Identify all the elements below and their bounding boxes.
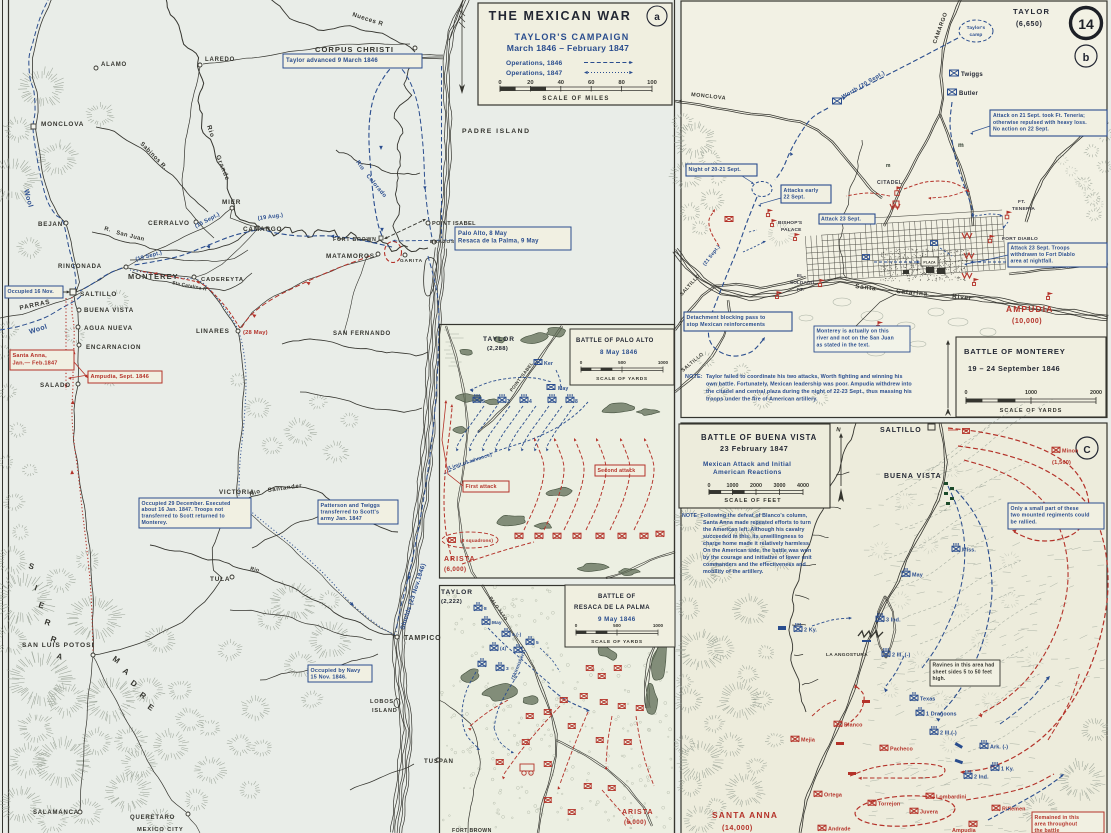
svg-text:AMPUDIA: AMPUDIA xyxy=(1006,304,1053,314)
svg-text:22 Sept.: 22 Sept. xyxy=(784,194,806,200)
svg-text:Santa Anna,: Santa Anna, xyxy=(13,353,48,359)
svg-text:Occupied 16 Nov.: Occupied 16 Nov. xyxy=(8,289,55,295)
svg-text:FT.: FT. xyxy=(1018,199,1026,205)
svg-text:Operations, 1846: Operations, 1846 xyxy=(506,60,562,67)
svg-text:(6,000): (6,000) xyxy=(624,819,646,826)
svg-text:otherwise repulsed with heavy: otherwise repulsed with heavy loss. xyxy=(993,120,1087,126)
svg-text:SALTILLO: SALTILLO xyxy=(80,291,117,298)
svg-text:PLAZA: PLAZA xyxy=(923,261,936,265)
svg-text:EL: EL xyxy=(797,273,803,278)
svg-text:m: m xyxy=(958,142,964,149)
svg-text:FORT BROWN: FORT BROWN xyxy=(452,828,492,833)
svg-text:POINT ISABEL: POINT ISABEL xyxy=(432,221,476,227)
svg-text:withdrawn to Fort Diablo: withdrawn to Fort Diablo xyxy=(1010,252,1076,258)
svg-text:BATTLE OF PALO ALTO: BATTLE OF PALO ALTO xyxy=(576,338,654,344)
svg-text:Monterey is actually on this: Monterey is actually on this xyxy=(817,329,889,335)
svg-text:80: 80 xyxy=(618,80,624,86)
svg-text:LOBOS: LOBOS xyxy=(370,699,394,705)
svg-text:5: 5 xyxy=(536,640,539,646)
svg-text:(4): (4) xyxy=(500,646,506,652)
svg-text:(1,500): (1,500) xyxy=(1052,460,1071,466)
svg-text:0: 0 xyxy=(965,390,968,396)
svg-text:500: 500 xyxy=(613,623,621,628)
svg-text:high.: high. xyxy=(933,676,946,682)
svg-text:by the courage and initiative: by the courage and initiative of lower u… xyxy=(703,555,812,561)
svg-text:SCALE OF YARDS: SCALE OF YARDS xyxy=(1000,408,1063,414)
svg-text:20: 20 xyxy=(527,80,533,86)
svg-text:BATTLE OF BUENA VISTA: BATTLE OF BUENA VISTA xyxy=(701,433,817,442)
svg-text:0: 0 xyxy=(708,483,711,489)
svg-text:4000: 4000 xyxy=(797,483,809,489)
svg-text:1000: 1000 xyxy=(727,483,739,489)
svg-text:MONTEREY: MONTEREY xyxy=(128,272,179,281)
svg-text:NOTE:: NOTE: xyxy=(685,374,703,380)
svg-text:First attack: First attack xyxy=(466,484,497,490)
svg-text:MATAMOROS: MATAMOROS xyxy=(326,253,375,260)
svg-text:FORT DIABLO: FORT DIABLO xyxy=(1002,236,1038,242)
svg-text:camp: camp xyxy=(970,33,983,38)
svg-text:Ampudia: Ampudia xyxy=(952,828,977,833)
svg-text:Butler: Butler xyxy=(959,91,978,97)
svg-text:the citadel and central plaza: the citadel and central plaza during the… xyxy=(706,389,912,395)
svg-text:ARISTA: ARISTA xyxy=(444,556,476,563)
svg-text:2 Ky.: 2 Ky. xyxy=(804,628,817,634)
svg-text:troops under the fire of Ameri: troops under the fire of American artill… xyxy=(706,397,818,403)
svg-text:CORPUS CHRISTI: CORPUS CHRISTI xyxy=(315,45,394,54)
svg-text:SCALE OF MILES: SCALE OF MILES xyxy=(542,96,609,102)
svg-text:CERRALVO: CERRALVO xyxy=(148,220,190,227)
svg-text:On the American side, the batt: On the American side, the battle was won xyxy=(703,548,811,554)
svg-text:RINCONADA: RINCONADA xyxy=(58,264,102,270)
svg-text:Only a small part of these: Only a small part of these xyxy=(1011,506,1079,512)
svg-text:60: 60 xyxy=(588,80,594,86)
svg-text:Palo Alto, 8 May: Palo Alto, 8 May xyxy=(458,231,507,237)
svg-text:Remained in this: Remained in this xyxy=(1035,815,1080,821)
svg-text:4: 4 xyxy=(529,399,532,405)
svg-text:transferred to Scott returned: transferred to Scott returned to xyxy=(142,514,225,520)
svg-text:500: 500 xyxy=(618,360,626,365)
svg-text:own battle. Fortunately, Mexic: own battle. Fortunately, Mexican leaders… xyxy=(706,382,912,388)
svg-text:(6,000): (6,000) xyxy=(444,566,466,573)
svg-text:BATTLE OF MONTEREY: BATTLE OF MONTEREY xyxy=(964,347,1066,356)
svg-text:2000: 2000 xyxy=(750,483,762,489)
svg-text:TULA: TULA xyxy=(210,576,230,583)
svg-text:the battle: the battle xyxy=(1035,828,1060,833)
svg-text:ENCARNACION: ENCARNACION xyxy=(86,344,141,351)
svg-text:SOLDADO: SOLDADO xyxy=(790,280,815,285)
svg-text:TAYLOR: TAYLOR xyxy=(441,589,473,596)
svg-text:mobility of the artillery.: mobility of the artillery. xyxy=(703,569,764,575)
svg-text:SCALE OF YARDS: SCALE OF YARDS xyxy=(591,639,643,645)
svg-text:(28 May): (28 May) xyxy=(243,330,268,336)
svg-text:4 (-): 4 (-) xyxy=(512,632,522,638)
svg-text:RESACA DE LA PALMA: RESACA DE LA PALMA xyxy=(574,605,650,611)
svg-text:8 May 1846: 8 May 1846 xyxy=(600,349,638,356)
svg-text:Ker: Ker xyxy=(544,361,553,367)
svg-text:Occupied by Navy: Occupied by Navy xyxy=(311,668,361,674)
svg-text:as stated in the text.: as stated in the text. xyxy=(817,342,871,348)
svg-text:a: a xyxy=(654,12,660,23)
svg-text:BUENA VISTA: BUENA VISTA xyxy=(884,473,942,480)
svg-text:Juvera: Juvera xyxy=(920,810,939,816)
svg-text:TAYLOR'S CAMPAIGN: TAYLOR'S CAMPAIGN xyxy=(515,32,630,42)
svg-text:river and not on the San Juan: river and not on the San Juan xyxy=(817,336,894,342)
svg-text:Jan.— Feb.1847: Jan.— Feb.1847 xyxy=(13,360,58,366)
svg-text:b: b xyxy=(1083,52,1090,64)
svg-text:LINARES: LINARES xyxy=(196,328,230,335)
svg-text:0: 0 xyxy=(498,80,501,86)
svg-text:Detachment blocking pass to: Detachment blocking pass to xyxy=(687,315,767,321)
svg-text:Mexican Attack and Initial: Mexican Attack and Initial xyxy=(703,461,791,468)
svg-text:Ortega: Ortega xyxy=(824,793,843,799)
svg-text:PADRE ISLAND: PADRE ISLAND xyxy=(462,128,530,135)
svg-text:March 1846 – February 1847: March 1846 – February 1847 xyxy=(507,43,629,53)
svg-text:SALADO: SALADO xyxy=(40,382,71,389)
svg-text:Miss.: Miss. xyxy=(962,548,976,554)
svg-text:Ark. (-): Ark. (-) xyxy=(990,745,1008,751)
svg-text:15 Nov. 1846.: 15 Nov. 1846. xyxy=(311,675,348,681)
svg-text:19 – 24 September 1846: 19 – 24 September 1846 xyxy=(968,364,1060,373)
svg-text:Taylor failed to coordinate hi: Taylor failed to coordinate his two atta… xyxy=(706,374,903,380)
svg-text:Pacheco: Pacheco xyxy=(890,747,913,753)
svg-text:about 16 Jan. 1847. Troops not: about 16 Jan. 1847. Troops not xyxy=(142,507,224,513)
svg-text:sheet sides 5 to 50 feet: sheet sides 5 to 50 feet xyxy=(933,669,993,675)
svg-text:LAREDO: LAREDO xyxy=(205,57,235,63)
svg-text:Blanco: Blanco xyxy=(844,723,863,729)
svg-text:0: 0 xyxy=(580,360,583,365)
svg-text:two mounted regiments could: two mounted regiments could xyxy=(1011,513,1090,519)
svg-text:(6,650): (6,650) xyxy=(1016,21,1042,28)
svg-text:Ampudia, Sept. 1846: Ampudia, Sept. 1846 xyxy=(91,374,150,380)
svg-text:Twiggs: Twiggs xyxy=(961,72,983,78)
svg-text:BISHOP'S: BISHOP'S xyxy=(778,220,803,226)
svg-text:Attack 23 Sept.: Attack 23 Sept. xyxy=(821,216,862,222)
svg-text:(2,222): (2,222) xyxy=(441,599,462,605)
svg-text:(8 squadrons): (8 squadrons) xyxy=(460,538,493,544)
svg-text:SCALE OF YARDS: SCALE OF YARDS xyxy=(596,376,648,382)
svg-text:14: 14 xyxy=(1078,16,1094,32)
svg-text:LA ANGOSTURA: LA ANGOSTURA xyxy=(826,652,868,658)
svg-text:3: 3 xyxy=(506,666,509,672)
svg-text:SAN FERNANDO: SAN FERNANDO xyxy=(333,331,391,337)
svg-text:MEXICO CITY: MEXICO CITY xyxy=(137,827,183,833)
svg-text:3: 3 xyxy=(507,399,510,405)
svg-text:1 Ky.: 1 Ky. xyxy=(1001,767,1014,773)
svg-text:9 May 1846: 9 May 1846 xyxy=(598,616,636,623)
svg-text:Minon: Minon xyxy=(1062,449,1078,455)
svg-text:1 Dragoons: 1 Dragoons xyxy=(926,712,957,718)
svg-text:ALAMO: ALAMO xyxy=(101,62,127,68)
svg-text:PALACE: PALACE xyxy=(781,227,802,233)
svg-text:Operations, 1847: Operations, 1847 xyxy=(506,70,562,77)
svg-text:Riflemen: Riflemen xyxy=(1002,807,1026,813)
svg-text:TAYLOR: TAYLOR xyxy=(1013,7,1050,16)
svg-text:Monterey.: Monterey. xyxy=(142,520,168,526)
svg-text:m: m xyxy=(886,163,891,169)
svg-text:2 Ill.(-): 2 Ill.(-) xyxy=(940,731,957,737)
svg-text:American Reactions: American Reactions xyxy=(713,469,782,476)
svg-text:40: 40 xyxy=(558,80,564,86)
svg-text:Lombardini: Lombardini xyxy=(936,795,967,801)
svg-text:QUERETARO: QUERETARO xyxy=(130,815,175,821)
svg-text:area at nightfall.: area at nightfall. xyxy=(1011,259,1054,265)
svg-text:No action on 22 Sept.: No action on 22 Sept. xyxy=(993,126,1049,132)
svg-text:3 Ind.: 3 Ind. xyxy=(886,618,901,624)
svg-text:stop Mexican reinforcements: stop Mexican reinforcements xyxy=(687,322,766,328)
svg-text:May: May xyxy=(558,386,568,392)
svg-text:be rallied.: be rallied. xyxy=(1011,519,1038,525)
svg-text:CAMARGO: CAMARGO xyxy=(243,226,282,233)
svg-text:23 February 1847: 23 February 1847 xyxy=(720,444,788,453)
svg-text:Occupied 29 December. Executed: Occupied 29 December. Executed xyxy=(142,501,231,507)
svg-text:THE MEXICAN WAR: THE MEXICAN WAR xyxy=(489,9,632,23)
svg-text:BUENA VISTA: BUENA VISTA xyxy=(84,307,134,314)
svg-text:AGUA NUEVA: AGUA NUEVA xyxy=(84,325,133,332)
svg-text:Attack on 21 Sept. took Ft. Te: Attack on 21 Sept. took Ft. Teneria; xyxy=(993,113,1085,119)
svg-text:May: May xyxy=(492,620,502,626)
svg-text:2 Ill. (-): 2 Ill. (-) xyxy=(892,653,910,659)
svg-text:SALTILLO: SALTILLO xyxy=(880,427,922,434)
svg-text:Mejia: Mejia xyxy=(801,738,816,744)
svg-text:FORT BROWN: FORT BROWN xyxy=(333,237,377,243)
svg-text:Ravines in this area had: Ravines in this area had xyxy=(933,663,995,669)
svg-text:1000: 1000 xyxy=(1025,390,1037,396)
svg-text:TAYLOR: TAYLOR xyxy=(483,336,515,343)
svg-text:BEJAN: BEJAN xyxy=(38,221,63,228)
svg-text:Texas: Texas xyxy=(920,697,935,703)
svg-text:SALAMANCA: SALAMANCA xyxy=(33,810,79,816)
svg-text:(2,288): (2,288) xyxy=(487,346,508,352)
svg-text:TENERIA: TENERIA xyxy=(1012,206,1035,212)
svg-text:transferred to Scott's: transferred to Scott's xyxy=(321,510,380,516)
svg-text:BRAZOS: BRAZOS xyxy=(430,239,455,245)
svg-text:the American left. Although hi: the American left. Although his cavalry xyxy=(703,527,805,533)
svg-text:area throughout: area throughout xyxy=(1035,821,1078,827)
svg-text:8: 8 xyxy=(484,606,487,612)
svg-text:Patterson and Twiggs: Patterson and Twiggs xyxy=(321,503,381,509)
svg-text:TUSPAN: TUSPAN xyxy=(424,758,454,765)
svg-text:Attacks early: Attacks early xyxy=(784,188,819,194)
svg-text:Santa Anna made repeated effor: Santa Anna made repeated efforts to turn xyxy=(703,520,811,526)
svg-text:SAN LUIS POTOSI: SAN LUIS POTOSI xyxy=(22,642,94,649)
svg-text:NOTE: Following the defeat o: NOTE: Following the defeat of Blanco's c… xyxy=(682,513,808,519)
svg-text:army Jan. 1847: army Jan. 1847 xyxy=(321,516,362,522)
svg-text:0: 0 xyxy=(575,623,578,628)
svg-text:CITADEL: CITADEL xyxy=(877,180,903,186)
svg-text:Resaca de la Palma, 9 May: Resaca de la Palma, 9 May xyxy=(458,239,539,245)
svg-text:5: 5 xyxy=(482,399,485,405)
svg-text:Night of 20-21 Sept.: Night of 20-21 Sept. xyxy=(689,167,742,173)
svg-text:(14,000): (14,000) xyxy=(722,823,753,832)
svg-text:BATTLE OF: BATTLE OF xyxy=(598,594,636,600)
svg-text:GARITA: GARITA xyxy=(400,258,423,264)
svg-text:1000: 1000 xyxy=(653,623,664,628)
svg-text:2 Ind.: 2 Ind. xyxy=(974,775,989,781)
svg-text:ARISTA: ARISTA xyxy=(622,809,654,816)
svg-text:Torrejon: Torrejon xyxy=(878,802,900,808)
svg-text:Taylor's: Taylor's xyxy=(967,25,986,31)
svg-text:100: 100 xyxy=(647,80,657,86)
svg-text:charge home made it relatively: charge home made it relatively harmless. xyxy=(703,541,811,547)
svg-text:Taylor advanced 9 March 1846: Taylor advanced 9 March 1846 xyxy=(286,58,378,64)
svg-text:Andrade: Andrade xyxy=(828,827,851,833)
svg-text:8: 8 xyxy=(575,399,578,405)
svg-text:TAMPICO: TAMPICO xyxy=(404,635,441,642)
svg-text:3000: 3000 xyxy=(774,483,786,489)
svg-text:1000: 1000 xyxy=(658,360,669,365)
svg-text:C: C xyxy=(1083,445,1090,456)
svg-text:(10,000): (10,000) xyxy=(1012,318,1042,325)
svg-text:SANTA ANNA: SANTA ANNA xyxy=(712,810,778,820)
svg-text:succeeded in this, its unwilli: succeeded in this, its unwillingness to xyxy=(703,534,804,540)
svg-text:ISLAND: ISLAND xyxy=(372,708,398,714)
svg-text:SCALE OF FEET: SCALE OF FEET xyxy=(724,498,781,504)
svg-text:MONCLOVA: MONCLOVA xyxy=(41,121,84,128)
svg-text:MIER: MIER xyxy=(222,199,241,206)
svg-text:Attack 23 Sept. Troops: Attack 23 Sept. Troops xyxy=(1011,246,1070,252)
svg-text:2000: 2000 xyxy=(1090,390,1102,396)
svg-text:FT.: FT. xyxy=(797,287,804,292)
svg-text:commanders and the effectivene: commanders and the effectiveness and xyxy=(703,562,806,568)
svg-text:May: May xyxy=(912,573,923,579)
svg-text:CADEREYTA: CADEREYTA xyxy=(201,277,244,283)
